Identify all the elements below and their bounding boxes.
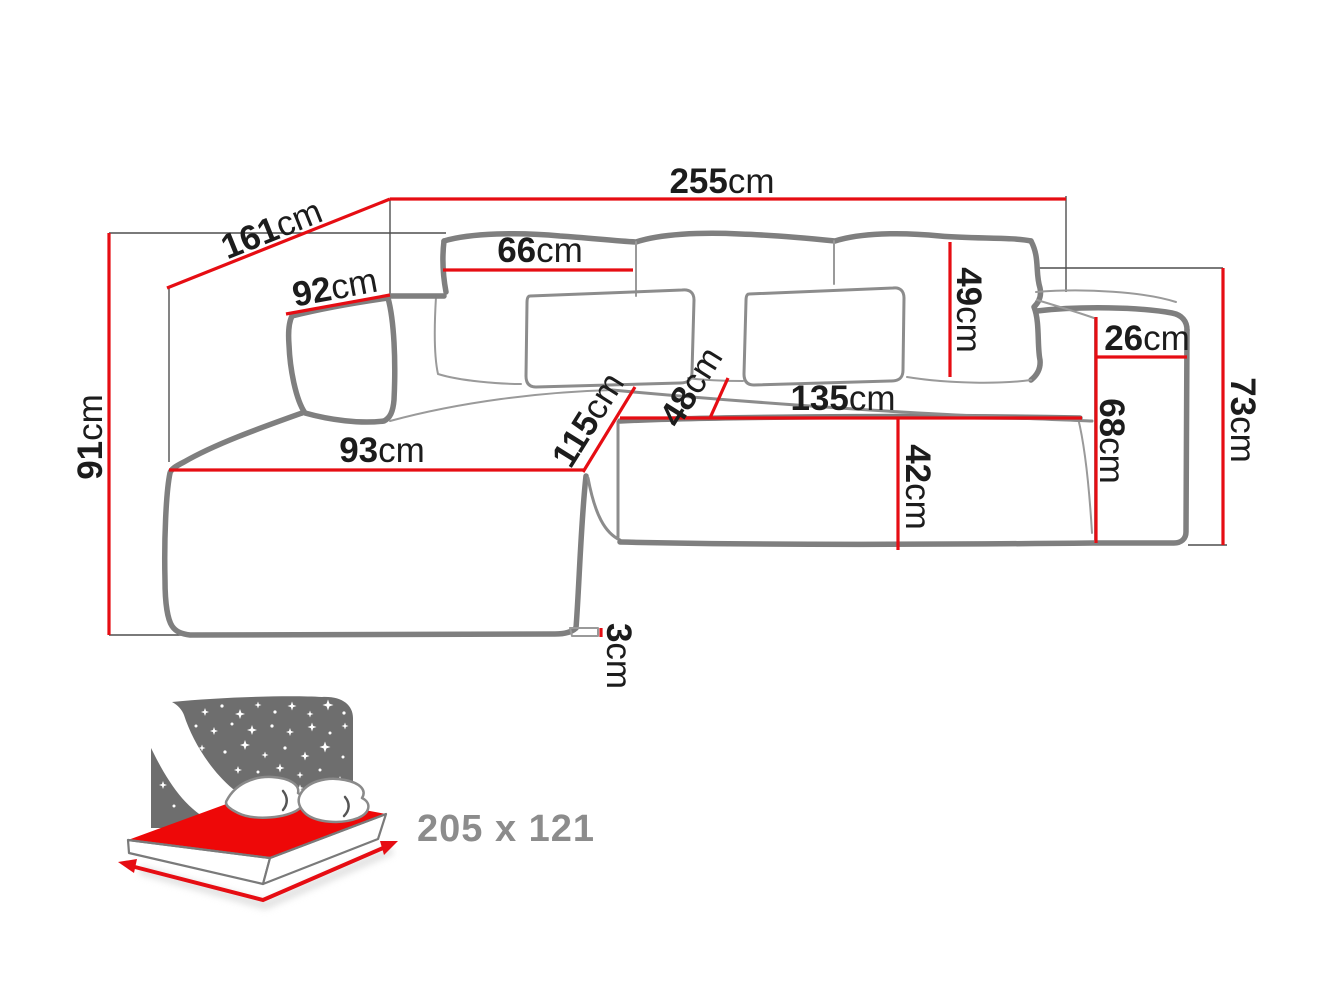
pillow1-bottom	[435, 297, 521, 384]
dim-66cm-label: 66cm	[497, 231, 583, 270]
dim-161cm-label: 161cm	[216, 192, 328, 268]
sofa-dimension-diagram: 255cm 161cm 91cm 92cm 66cm 49cm 26cm 73c…	[0, 0, 1331, 998]
pillow3-bottom	[907, 377, 1031, 383]
sleeping-size-label: 205 x 121	[417, 808, 595, 850]
dim-135cm-label: 135cm	[790, 379, 895, 418]
dim-73cm-label: 73cm	[1223, 377, 1262, 463]
dim-92cm-label: 92cm	[289, 261, 380, 315]
dim-49cm-label: 49cm	[949, 267, 988, 353]
dim-255cm-label: 255cm	[669, 162, 774, 201]
back-pillow-left-edge	[443, 241, 446, 292]
chaise-corner-curve	[588, 478, 620, 540]
dim-91cm-label: 91cm	[71, 394, 110, 480]
dim-68cm-label: 68cm	[1092, 398, 1131, 484]
headboard-upper	[172, 696, 353, 790]
diagram-canvas: 255cm 161cm 91cm 92cm 66cm 49cm 26cm 73c…	[0, 0, 1331, 998]
chaise-right-edge	[576, 476, 586, 628]
dim-26cm-label: 26cm	[1104, 319, 1190, 358]
dim-42cm-label: 42cm	[898, 444, 937, 530]
left-armrest	[289, 298, 395, 422]
dimension-labels: 255cm 161cm 91cm 92cm 66cm 49cm 26cm 73c…	[71, 162, 1262, 689]
small-pillow-left	[526, 290, 694, 387]
seat-right-edge	[1078, 418, 1092, 533]
bed-pillow-right	[299, 779, 369, 822]
right-armrest-back-line	[1036, 290, 1176, 302]
small-pillow-right	[744, 288, 904, 385]
dim-3cm-label: 3cm	[599, 623, 638, 689]
dim-93cm-label: 93cm	[339, 431, 425, 470]
arrowhead-left	[118, 859, 137, 873]
